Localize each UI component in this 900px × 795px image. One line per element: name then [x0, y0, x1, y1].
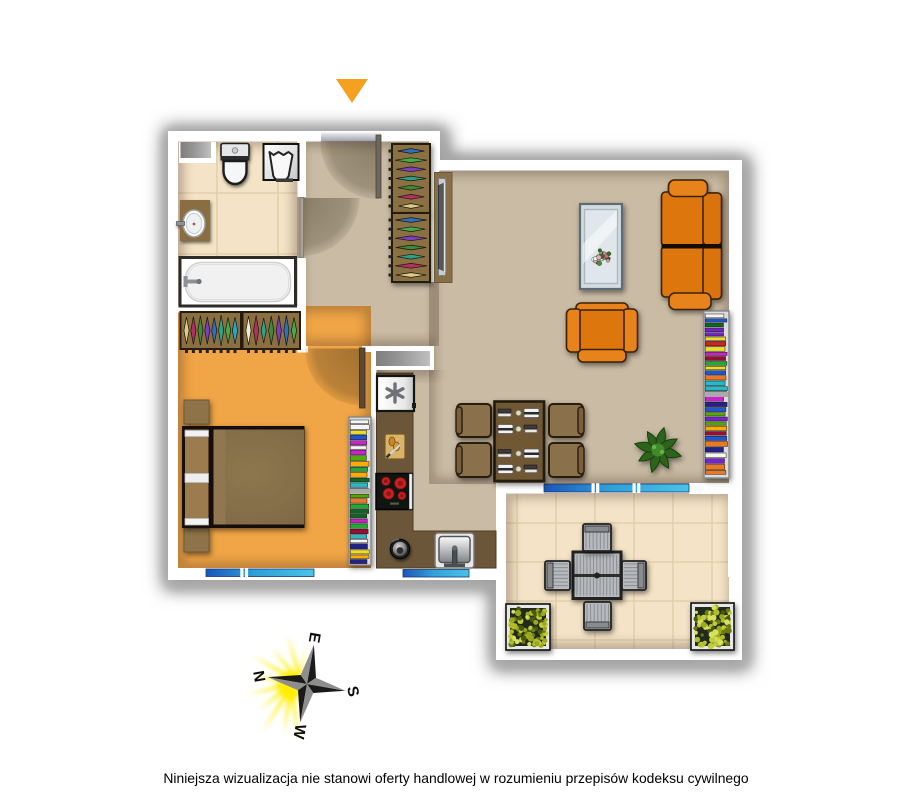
- svg-text:W: W: [289, 723, 308, 741]
- svg-text:E: E: [305, 631, 324, 644]
- svg-text:Niniejsza wizualizacja nie sta: Niniejsza wizualizacja nie stanowi ofert…: [163, 770, 749, 786]
- svg-text:N: N: [249, 670, 268, 684]
- svg-text:S: S: [343, 685, 362, 699]
